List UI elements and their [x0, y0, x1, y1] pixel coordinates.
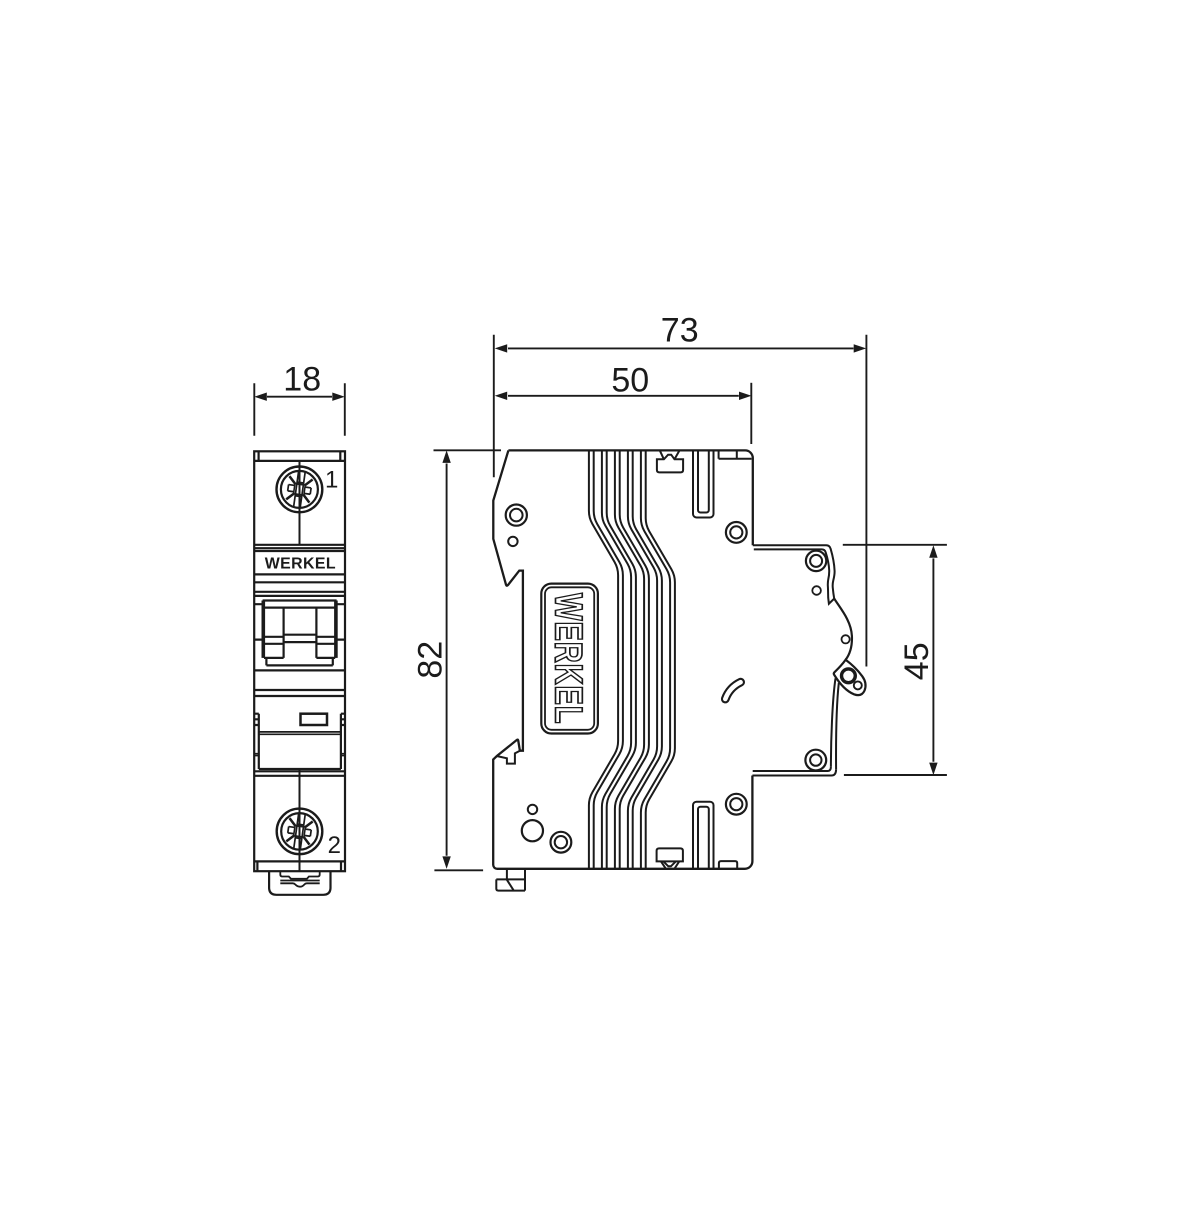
svg-text:2: 2 — [328, 832, 341, 859]
svg-text:45: 45 — [898, 642, 936, 680]
svg-text:1: 1 — [325, 467, 338, 494]
svg-text:WERKEL: WERKEL — [265, 555, 336, 572]
svg-text:WERKEL: WERKEL — [547, 593, 590, 724]
svg-text:50: 50 — [611, 362, 649, 400]
svg-text:73: 73 — [661, 312, 699, 350]
svg-text:18: 18 — [283, 361, 321, 399]
svg-text:82: 82 — [412, 641, 450, 679]
